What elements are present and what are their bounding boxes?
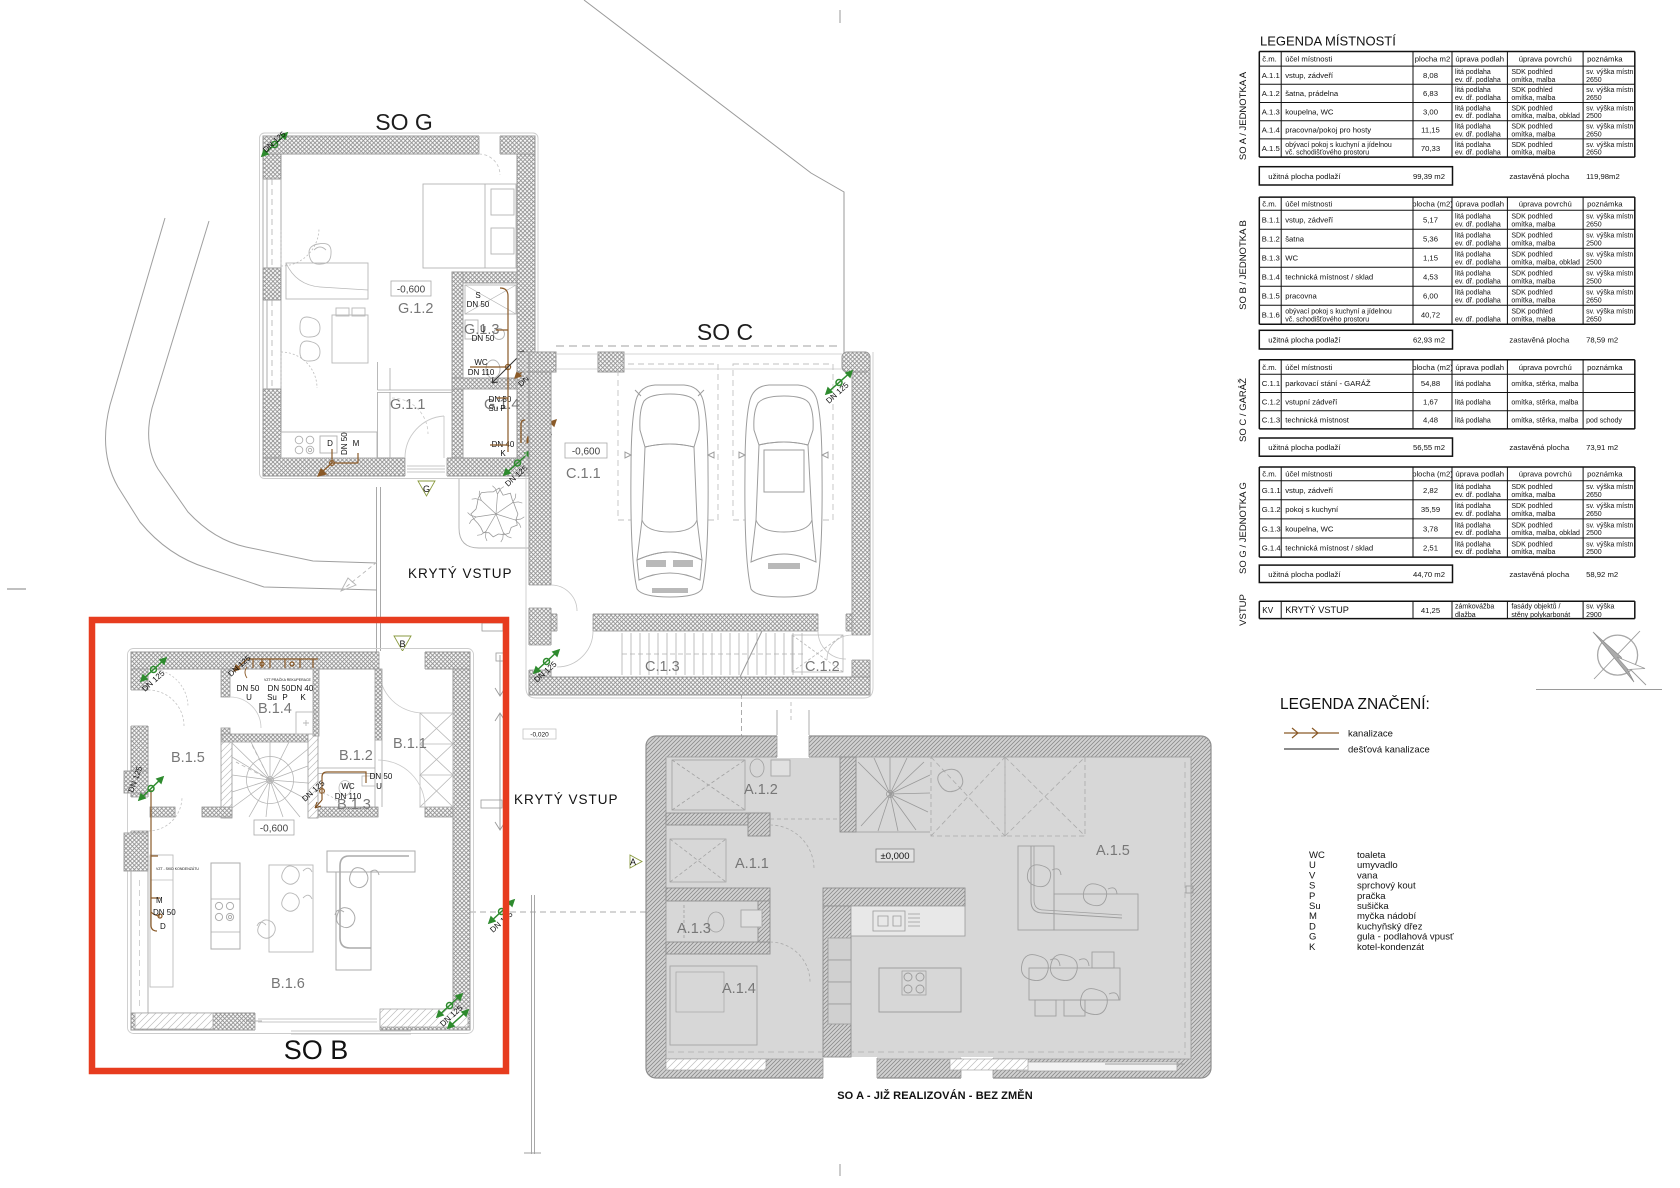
svg-text:B.1.1: B.1.1 — [1262, 216, 1280, 225]
svg-text:C.1.3: C.1.3 — [645, 659, 680, 675]
svg-text:úprava podlah: úprava podlah — [1455, 55, 1504, 64]
svg-text:koupelna, WC: koupelna, WC — [1285, 107, 1334, 116]
svg-text:litá podlaha: litá podlaha — [1455, 252, 1491, 259]
svg-text:SO G / JEDNOTKA G: SO G / JEDNOTKA G — [1238, 482, 1249, 574]
svg-text:2650: 2650 — [1586, 95, 1602, 102]
svg-text:sv. výška místn.: sv. výška místn. — [1586, 290, 1635, 297]
svg-text:omítka, malba: omítka, malba — [1511, 221, 1555, 228]
svg-text:omítka, malba: omítka, malba — [1511, 316, 1555, 323]
svg-text:P: P — [282, 693, 287, 702]
svg-text:poznámka: poznámka — [1587, 55, 1623, 64]
svg-text:šatna, prádelna: šatna, prádelna — [1285, 89, 1339, 98]
svg-text:omítka, malba: omítka, malba — [1511, 549, 1555, 556]
svg-text:M: M — [156, 896, 163, 905]
svg-text:SDK podhled: SDK podhled — [1511, 105, 1552, 112]
svg-text:litá podlaha: litá podlaha — [1455, 541, 1491, 548]
svg-text:LEGENDA ZNAČENÍ:: LEGENDA ZNAČENÍ: — [1280, 696, 1430, 713]
svg-text:SDK podhled: SDK podhled — [1511, 214, 1552, 221]
svg-text:ev. dř. podlaha: ev. dř. podlaha — [1455, 131, 1501, 138]
svg-text:užitná plocha podlaží: užitná plocha podlaží — [1268, 172, 1341, 181]
svg-text:SO B / JEDNOTKA B: SO B / JEDNOTKA B — [1238, 220, 1249, 310]
svg-text:B: B — [399, 639, 405, 649]
svg-text:užitná plocha podlaží: užitná plocha podlaží — [1268, 570, 1341, 579]
svg-text:poznámka: poznámka — [1587, 470, 1623, 479]
svg-text:omítka, stěrka, malba: omítka, stěrka, malba — [1511, 399, 1578, 406]
svg-text:A.1.4: A.1.4 — [722, 981, 756, 997]
svg-text:3,00: 3,00 — [1423, 107, 1438, 116]
svg-text:ev. dř. podlaha: ev. dř. podlaha — [1455, 278, 1501, 285]
svg-text:účel místnosti: účel místnosti — [1285, 363, 1332, 372]
svg-text:úprava povrchú: úprava povrchú — [1519, 470, 1572, 479]
svg-text:SDK podhled: SDK podhled — [1511, 233, 1552, 240]
svg-text:S: S — [475, 291, 480, 300]
svg-text:SDK podhled: SDK podhled — [1511, 124, 1552, 131]
svg-text:omítka, malba: omítka, malba — [1511, 511, 1555, 518]
svg-text:omítka, malba: omítka, malba — [1511, 150, 1555, 157]
svg-text:DN 110: DN 110 — [468, 368, 495, 377]
svg-text:omítka, stěrka, malba: omítka, stěrka, malba — [1511, 381, 1578, 388]
svg-text:-0,020: -0,020 — [530, 732, 549, 739]
svg-text:SDK podhled: SDK podhled — [1511, 252, 1552, 259]
svg-text:úprava povrchú: úprava povrchú — [1519, 200, 1572, 209]
svg-text:U: U — [376, 782, 382, 791]
svg-text:DN 40: DN 40 — [291, 684, 314, 693]
svg-text:sv. výška místn.: sv. výška místn. — [1586, 522, 1635, 529]
svg-text:SO A / JEDNOTKA A: SO A / JEDNOTKA A — [1238, 71, 1249, 160]
svg-text:plocha (m2): plocha (m2) — [1412, 470, 1453, 479]
svg-text:účel místnosti: účel místnosti — [1285, 55, 1332, 64]
svg-text:sv. výška: sv. výška — [1586, 604, 1614, 611]
svg-text:technická místnost / sklad: technická místnost / sklad — [1285, 543, 1373, 552]
svg-text:č.m.: č.m. — [1262, 363, 1277, 372]
svg-text:G.1.1: G.1.1 — [1262, 486, 1281, 495]
svg-text:54,88: 54,88 — [1421, 379, 1440, 388]
svg-text:litá podlaha: litá podlaha — [1455, 69, 1491, 76]
svg-text:plocha (m2): plocha (m2) — [1412, 200, 1453, 209]
svg-text:SDK podhled: SDK podhled — [1511, 142, 1552, 149]
svg-text:D: D — [160, 922, 166, 931]
svg-text:plocha (m2): plocha (m2) — [1412, 363, 1453, 372]
svg-text:C.1.2: C.1.2 — [805, 659, 840, 675]
svg-text:2,51: 2,51 — [1423, 543, 1438, 552]
svg-text:koupelna, WC: koupelna, WC — [1285, 524, 1334, 533]
svg-text:fasády objektů /: fasády objektů / — [1511, 603, 1560, 611]
svg-text:ev. dř. podlaha: ev. dř. podlaha — [1455, 150, 1501, 157]
svg-text:stěny polykarbonát: stěny polykarbonát — [1511, 612, 1570, 619]
svg-text:omítka, malba, obklad: omítka, malba, obklad — [1511, 113, 1580, 120]
svg-text:DN 50: DN 50 — [268, 684, 291, 693]
svg-text:SDK podhled: SDK podhled — [1511, 484, 1552, 491]
svg-text:litá podlaha: litá podlaha — [1455, 418, 1491, 425]
svg-text:účel místnosti: účel místnosti — [1285, 470, 1332, 479]
svg-text:K: K — [1309, 942, 1316, 953]
svg-text:4,48: 4,48 — [1423, 416, 1438, 425]
svg-text:ev. dř. podlaha: ev. dř. podlaha — [1455, 113, 1501, 120]
svg-text:99,39 m2: 99,39 m2 — [1413, 172, 1445, 181]
svg-text:zastavěná plocha: zastavěná plocha — [1509, 570, 1570, 579]
svg-text:1,67: 1,67 — [1423, 397, 1438, 406]
svg-text:6,00: 6,00 — [1423, 292, 1438, 301]
svg-text:SO A - JIŽ REALIZOVÁN - BEZ ZM: SO A - JIŽ REALIZOVÁN - BEZ ZMĚN — [837, 1089, 1033, 1102]
svg-text:účel místnosti: účel místnosti — [1285, 200, 1332, 209]
svg-text:sv. výška místn.: sv. výška místn. — [1586, 271, 1635, 278]
svg-text:DN 50: DN 50 — [237, 684, 260, 693]
svg-text:B.1.3: B.1.3 — [1262, 254, 1280, 263]
svg-text:ev. dř. podlaha: ev. dř. podlaha — [1455, 297, 1501, 304]
svg-text:sv. výška místn.: sv. výška místn. — [1586, 105, 1635, 112]
svg-text:pokoj s kuchyní: pokoj s kuchyní — [1285, 505, 1339, 514]
svg-text:úprava povrchú: úprava povrchú — [1519, 55, 1572, 64]
svg-text:G.1.3: G.1.3 — [1262, 524, 1281, 533]
svg-text:ev. dř. podlaha: ev. dř. podlaha — [1455, 530, 1501, 537]
svg-text:DN 110: DN 110 — [335, 792, 362, 801]
svg-text:2650: 2650 — [1586, 511, 1602, 518]
svg-text:litá podlaha: litá podlaha — [1455, 399, 1491, 406]
svg-text:2650: 2650 — [1586, 131, 1602, 138]
svg-text:KRYTÝ VSTUP: KRYTÝ VSTUP — [408, 566, 513, 581]
svg-text:litá podlaha: litá podlaha — [1455, 105, 1491, 112]
svg-text:litá podlaha: litá podlaha — [1455, 503, 1491, 510]
svg-text:2,82: 2,82 — [1423, 486, 1438, 495]
svg-text:A: A — [630, 857, 636, 867]
svg-text:2650: 2650 — [1586, 297, 1602, 304]
svg-text:užitná plocha podlaží: užitná plocha podlaží — [1268, 443, 1341, 452]
svg-text:omítka, malba: omítka, malba — [1511, 95, 1555, 102]
svg-text:B.1.5: B.1.5 — [1262, 292, 1280, 301]
svg-text:vč. schodišťového prostoru: vč. schodišťového prostoru — [1285, 316, 1369, 323]
svg-text:M: M — [353, 439, 360, 448]
svg-text:obývací pokoj s kuchyní a jíde: obývací pokoj s kuchyní a jídelnou — [1285, 309, 1392, 316]
svg-text:vstup, zádveří: vstup, zádveří — [1285, 486, 1334, 495]
svg-text:4,53: 4,53 — [1423, 273, 1438, 282]
svg-text:litá podlaha: litá podlaha — [1455, 87, 1491, 94]
svg-text:sv. výška místn.: sv. výška místn. — [1586, 484, 1635, 491]
svg-text:56,55 m2: 56,55 m2 — [1413, 443, 1445, 452]
svg-text:5,17: 5,17 — [1423, 216, 1438, 225]
svg-text:zastavěná plocha: zastavěná plocha — [1509, 336, 1570, 345]
svg-text:Su: Su — [267, 693, 277, 702]
svg-text:litá podlaha: litá podlaha — [1455, 290, 1491, 297]
svg-text:omítka, malba: omítka, malba — [1511, 492, 1555, 499]
svg-text:č.m.: č.m. — [1262, 55, 1277, 64]
svg-text:technická místnost / sklad: technická místnost / sklad — [1285, 273, 1373, 282]
svg-text:G: G — [423, 484, 430, 494]
svg-text:sv. výška místn.: sv. výška místn. — [1586, 233, 1635, 240]
svg-text:D: D — [327, 439, 333, 448]
svg-text:11,15: 11,15 — [1421, 126, 1440, 135]
svg-text:35,59: 35,59 — [1421, 505, 1440, 514]
svg-text:SDK podhled: SDK podhled — [1511, 271, 1552, 278]
svg-text:3,78: 3,78 — [1423, 524, 1438, 533]
svg-text:litá podlaha: litá podlaha — [1455, 233, 1491, 240]
svg-text:8,08: 8,08 — [1423, 71, 1438, 80]
svg-text:litá podlaha: litá podlaha — [1455, 381, 1491, 388]
svg-text:úprava podlah: úprava podlah — [1455, 363, 1504, 372]
svg-text:C.1.2: C.1.2 — [1262, 397, 1280, 406]
svg-text:zastavěná plocha: zastavěná plocha — [1509, 172, 1570, 181]
svg-text:G.1.2: G.1.2 — [398, 301, 433, 317]
svg-text:2500: 2500 — [1586, 549, 1602, 556]
svg-text:2650: 2650 — [1586, 150, 1602, 157]
svg-text:2900: 2900 — [1586, 612, 1602, 619]
svg-text:B.1.2: B.1.2 — [339, 748, 373, 764]
svg-text:KRYTÝ VSTUP: KRYTÝ VSTUP — [1285, 605, 1349, 615]
svg-text:VZT PRAČKA REKUPERACE: VZT PRAČKA REKUPERACE — [264, 677, 311, 682]
svg-text:pracovna: pracovna — [1285, 292, 1317, 301]
svg-text:ev. dř. podlaha: ev. dř. podlaha — [1455, 549, 1501, 556]
svg-text:G.1.2: G.1.2 — [1262, 505, 1281, 514]
svg-text:omítka, stěrka, malba: omítka, stěrka, malba — [1511, 418, 1578, 425]
svg-text:B.1.2: B.1.2 — [1262, 235, 1280, 244]
svg-text:omítka, malba: omítka, malba — [1511, 297, 1555, 304]
svg-text:DN 50: DN 50 — [472, 334, 495, 343]
svg-text:poznámka: poznámka — [1587, 200, 1623, 209]
svg-text:A.1.1: A.1.1 — [735, 856, 769, 872]
svg-text:SDK podhled: SDK podhled — [1511, 69, 1552, 76]
svg-text:70,33: 70,33 — [1421, 144, 1440, 153]
svg-text:SO B: SO B — [284, 1035, 349, 1065]
svg-text:ev. dř. podlaha: ev. dř. podlaha — [1455, 259, 1501, 266]
svg-text:sv. výška místn.: sv. výška místn. — [1586, 541, 1635, 548]
svg-text:pod schody: pod schody — [1586, 418, 1622, 425]
svg-text:6,83: 6,83 — [1423, 89, 1438, 98]
svg-text:pracovna/pokoj pro hosty: pracovna/pokoj pro hosty — [1285, 126, 1371, 135]
svg-text:WC: WC — [1285, 254, 1298, 263]
svg-text:C.1.1: C.1.1 — [566, 466, 601, 482]
svg-text:WC: WC — [474, 358, 488, 367]
svg-text:73,91 m2: 73,91 m2 — [1586, 443, 1618, 452]
svg-text:kotel-kondenzát: kotel-kondenzát — [1357, 942, 1424, 953]
svg-text:SDK podhled: SDK podhled — [1511, 522, 1552, 529]
svg-text:litá podlaha: litá podlaha — [1455, 214, 1491, 221]
svg-text:KRYTÝ VSTUP: KRYTÝ VSTUP — [514, 792, 619, 807]
svg-text:litá podlaha: litá podlaha — [1455, 484, 1491, 491]
svg-text:SO C: SO C — [697, 319, 753, 345]
svg-text:-0,600: -0,600 — [572, 447, 601, 458]
svg-text:5,36: 5,36 — [1423, 235, 1438, 244]
svg-text:A.1.2: A.1.2 — [1262, 89, 1280, 98]
svg-text:sv. výška místn.: sv. výška místn. — [1586, 503, 1635, 510]
svg-text:DN 50: DN 50 — [340, 432, 349, 455]
svg-text:parkovací stání - GARÁŽ: parkovací stání - GARÁŽ — [1285, 379, 1371, 388]
svg-text:DN 50: DN 50 — [370, 772, 393, 781]
svg-text:2650: 2650 — [1586, 492, 1602, 499]
svg-text:-0,600: -0,600 — [260, 824, 289, 835]
svg-text:omítka, malba: omítka, malba — [1511, 131, 1555, 138]
svg-text:VZT - SKID KONDENZÁTU: VZT - SKID KONDENZÁTU — [156, 867, 199, 871]
svg-text:2650: 2650 — [1586, 316, 1602, 323]
svg-text:WC: WC — [341, 782, 355, 791]
svg-text:č.m.: č.m. — [1262, 470, 1277, 479]
svg-text:obývací pokoj s kuchyní a jíde: obývací pokoj s kuchyní a jídelnou — [1285, 142, 1392, 149]
svg-text:2500: 2500 — [1586, 240, 1602, 247]
svg-text:vč. schodišťového prostoru: vč. schodišťového prostoru — [1285, 150, 1369, 157]
svg-text:K: K — [500, 449, 506, 458]
svg-text:LEGENDA MÍSTNOSTÍ: LEGENDA MÍSTNOSTÍ — [1260, 34, 1396, 49]
svg-text:litá podlaha: litá podlaha — [1455, 522, 1491, 529]
svg-text:B.1.5: B.1.5 — [171, 750, 205, 766]
svg-text:sv. výška místn.: sv. výška místn. — [1586, 87, 1635, 94]
svg-text:zámkovážba: zámkovážba — [1455, 604, 1494, 611]
svg-text:-0,600: -0,600 — [397, 285, 426, 296]
svg-text:DN 50: DN 50 — [467, 300, 490, 309]
svg-text:SO C / GARÁŽ: SO C / GARÁŽ — [1238, 378, 1249, 442]
svg-text:SDK podhled: SDK podhled — [1511, 503, 1552, 510]
svg-text:užitná plocha podlaží: užitná plocha podlaží — [1268, 336, 1341, 345]
svg-text:litá podlaha: litá podlaha — [1455, 124, 1491, 131]
svg-text:plocha m2: plocha m2 — [1415, 55, 1450, 64]
svg-text:C.1.3: C.1.3 — [1262, 416, 1280, 425]
svg-text:omítka, malba, obklad: omítka, malba, obklad — [1511, 259, 1580, 266]
svg-text:omítka, malba: omítka, malba — [1511, 77, 1555, 84]
svg-text:U: U — [246, 693, 252, 702]
svg-text:SDK podhled: SDK podhled — [1511, 87, 1552, 94]
svg-text:SO G: SO G — [375, 109, 433, 135]
svg-text:kanalizace: kanalizace — [1348, 729, 1393, 740]
svg-text:1,15: 1,15 — [1423, 254, 1438, 263]
svg-text:B.1.4: B.1.4 — [258, 701, 292, 717]
svg-text:C.1.1: C.1.1 — [1262, 379, 1280, 388]
svg-text:sv. výška místn.: sv. výška místn. — [1586, 142, 1635, 149]
svg-text:úprava podlah: úprava podlah — [1455, 470, 1504, 479]
svg-text:B.1.6: B.1.6 — [1262, 311, 1280, 320]
svg-text:2650: 2650 — [1586, 77, 1602, 84]
svg-text:ev. dř. podlaha: ev. dř. podlaha — [1455, 77, 1501, 84]
svg-text:DN 50: DN 50 — [153, 908, 176, 917]
svg-text:litá podlaha: litá podlaha — [1455, 142, 1491, 149]
svg-text:Su P: Su P — [488, 404, 505, 413]
svg-text:2650: 2650 — [1586, 221, 1602, 228]
svg-text:poznámka: poznámka — [1587, 363, 1623, 372]
svg-text:U: U — [480, 325, 486, 334]
svg-text:B.1.6: B.1.6 — [271, 976, 305, 992]
svg-text:vstup, zádveří: vstup, zádveří — [1285, 216, 1334, 225]
svg-text:2500: 2500 — [1586, 530, 1602, 537]
svg-text:2500: 2500 — [1586, 259, 1602, 266]
svg-text:omítka, malba, obklad: omítka, malba, obklad — [1511, 530, 1580, 537]
svg-text:technická místnost: technická místnost — [1285, 416, 1350, 425]
svg-text:omítka, malba: omítka, malba — [1511, 278, 1555, 285]
svg-text:litá podlaha: litá podlaha — [1455, 271, 1491, 278]
svg-text:vstupní zádveří: vstupní zádveří — [1285, 397, 1338, 406]
svg-text:šatna: šatna — [1285, 235, 1305, 244]
svg-text:B.1.1: B.1.1 — [393, 736, 427, 752]
svg-text:ev. dř. podlaha: ev. dř. podlaha — [1455, 316, 1501, 323]
svg-text:vstup, zádveří: vstup, zádveří — [1285, 71, 1334, 80]
svg-text:dlažba: dlažba — [1455, 612, 1476, 619]
svg-text:ev. dř. podlaha: ev. dř. podlaha — [1455, 95, 1501, 102]
svg-text:zastavěná plocha: zastavěná plocha — [1509, 443, 1570, 452]
svg-text:ev. dř. podlaha: ev. dř. podlaha — [1455, 492, 1501, 499]
svg-text:sv. výška místn.: sv. výška místn. — [1586, 309, 1635, 316]
svg-text:ev. dř. podlaha: ev. dř. podlaha — [1455, 240, 1501, 247]
svg-text:ev. dř. podlaha: ev. dř. podlaha — [1455, 221, 1501, 228]
svg-text:dešťová kanalizace: dešťová kanalizace — [1348, 745, 1430, 756]
svg-text:A.1.5: A.1.5 — [1096, 843, 1130, 859]
svg-text:úprava podlah: úprava podlah — [1455, 200, 1504, 209]
svg-text:č.m.: č.m. — [1262, 200, 1277, 209]
svg-text:G.1.1: G.1.1 — [390, 397, 425, 413]
svg-text:A.1.2: A.1.2 — [744, 782, 778, 798]
svg-text:úprava povrchú: úprava povrchú — [1519, 363, 1572, 372]
svg-text:sv. výška místn.: sv. výška místn. — [1586, 124, 1635, 131]
svg-text:sv. výška místn.: sv. výška místn. — [1586, 214, 1635, 221]
svg-text:58,92 m2: 58,92 m2 — [1586, 570, 1618, 579]
svg-text:A.1.3: A.1.3 — [677, 921, 711, 937]
svg-text:KV: KV — [1262, 606, 1273, 615]
svg-text:A.1.4: A.1.4 — [1262, 126, 1281, 135]
svg-text:2500: 2500 — [1586, 113, 1602, 120]
svg-text:40,72: 40,72 — [1421, 311, 1440, 320]
svg-text:G.1.4: G.1.4 — [1262, 543, 1282, 552]
svg-text:sv. výška místn.: sv. výška místn. — [1586, 252, 1635, 259]
svg-text:119,98m2: 119,98m2 — [1586, 172, 1620, 181]
svg-text:A.1.5: A.1.5 — [1262, 144, 1280, 153]
svg-text:2500: 2500 — [1586, 278, 1602, 285]
svg-text:sv. výška místn.: sv. výška místn. — [1586, 69, 1635, 76]
svg-text:±0,000: ±0,000 — [881, 851, 910, 862]
svg-text:78,59 m2: 78,59 m2 — [1586, 336, 1618, 345]
svg-text:SDK podhled: SDK podhled — [1511, 309, 1552, 316]
svg-text:VSTUP: VSTUP — [1238, 594, 1249, 626]
svg-text:SDK podhled: SDK podhled — [1511, 290, 1552, 297]
svg-text:44,70 m2: 44,70 m2 — [1413, 570, 1445, 579]
svg-text:K: K — [300, 693, 306, 702]
svg-text:omítka, malba: omítka, malba — [1511, 240, 1555, 247]
svg-text:62,93 m2: 62,93 m2 — [1413, 336, 1445, 345]
svg-text:SDK podhled: SDK podhled — [1511, 541, 1552, 548]
svg-text:ev. dř. podlaha: ev. dř. podlaha — [1455, 511, 1501, 518]
svg-text:A.1.3: A.1.3 — [1262, 107, 1280, 116]
svg-text:A.1.1: A.1.1 — [1262, 71, 1280, 80]
svg-text:41,25: 41,25 — [1421, 606, 1440, 615]
svg-text:B.1.4: B.1.4 — [1262, 273, 1281, 282]
